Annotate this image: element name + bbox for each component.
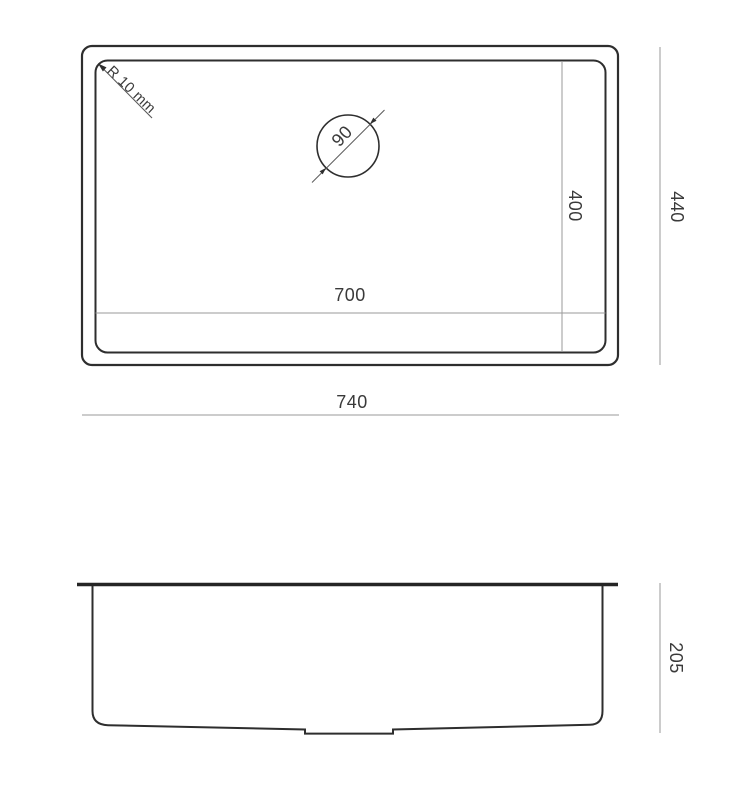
- outer-rim-outline: [82, 46, 618, 365]
- bowl-depth-label: 400: [565, 190, 585, 222]
- height-label: 205: [666, 642, 686, 674]
- bowl-width-label: 700: [334, 285, 366, 305]
- top-view: R 10 mm 90 700 400 740 440: [82, 46, 687, 415]
- outer-depth-label: 440: [667, 191, 687, 223]
- drawing-svg: R 10 mm 90 700 400 740 440 205: [0, 0, 737, 800]
- outer-width-label: 740: [336, 392, 368, 412]
- side-view: 205: [77, 583, 686, 734]
- sink-dimension-drawing: R 10 mm 90 700 400 740 440 205: [0, 0, 737, 800]
- bowl-profile-outline: [93, 586, 603, 734]
